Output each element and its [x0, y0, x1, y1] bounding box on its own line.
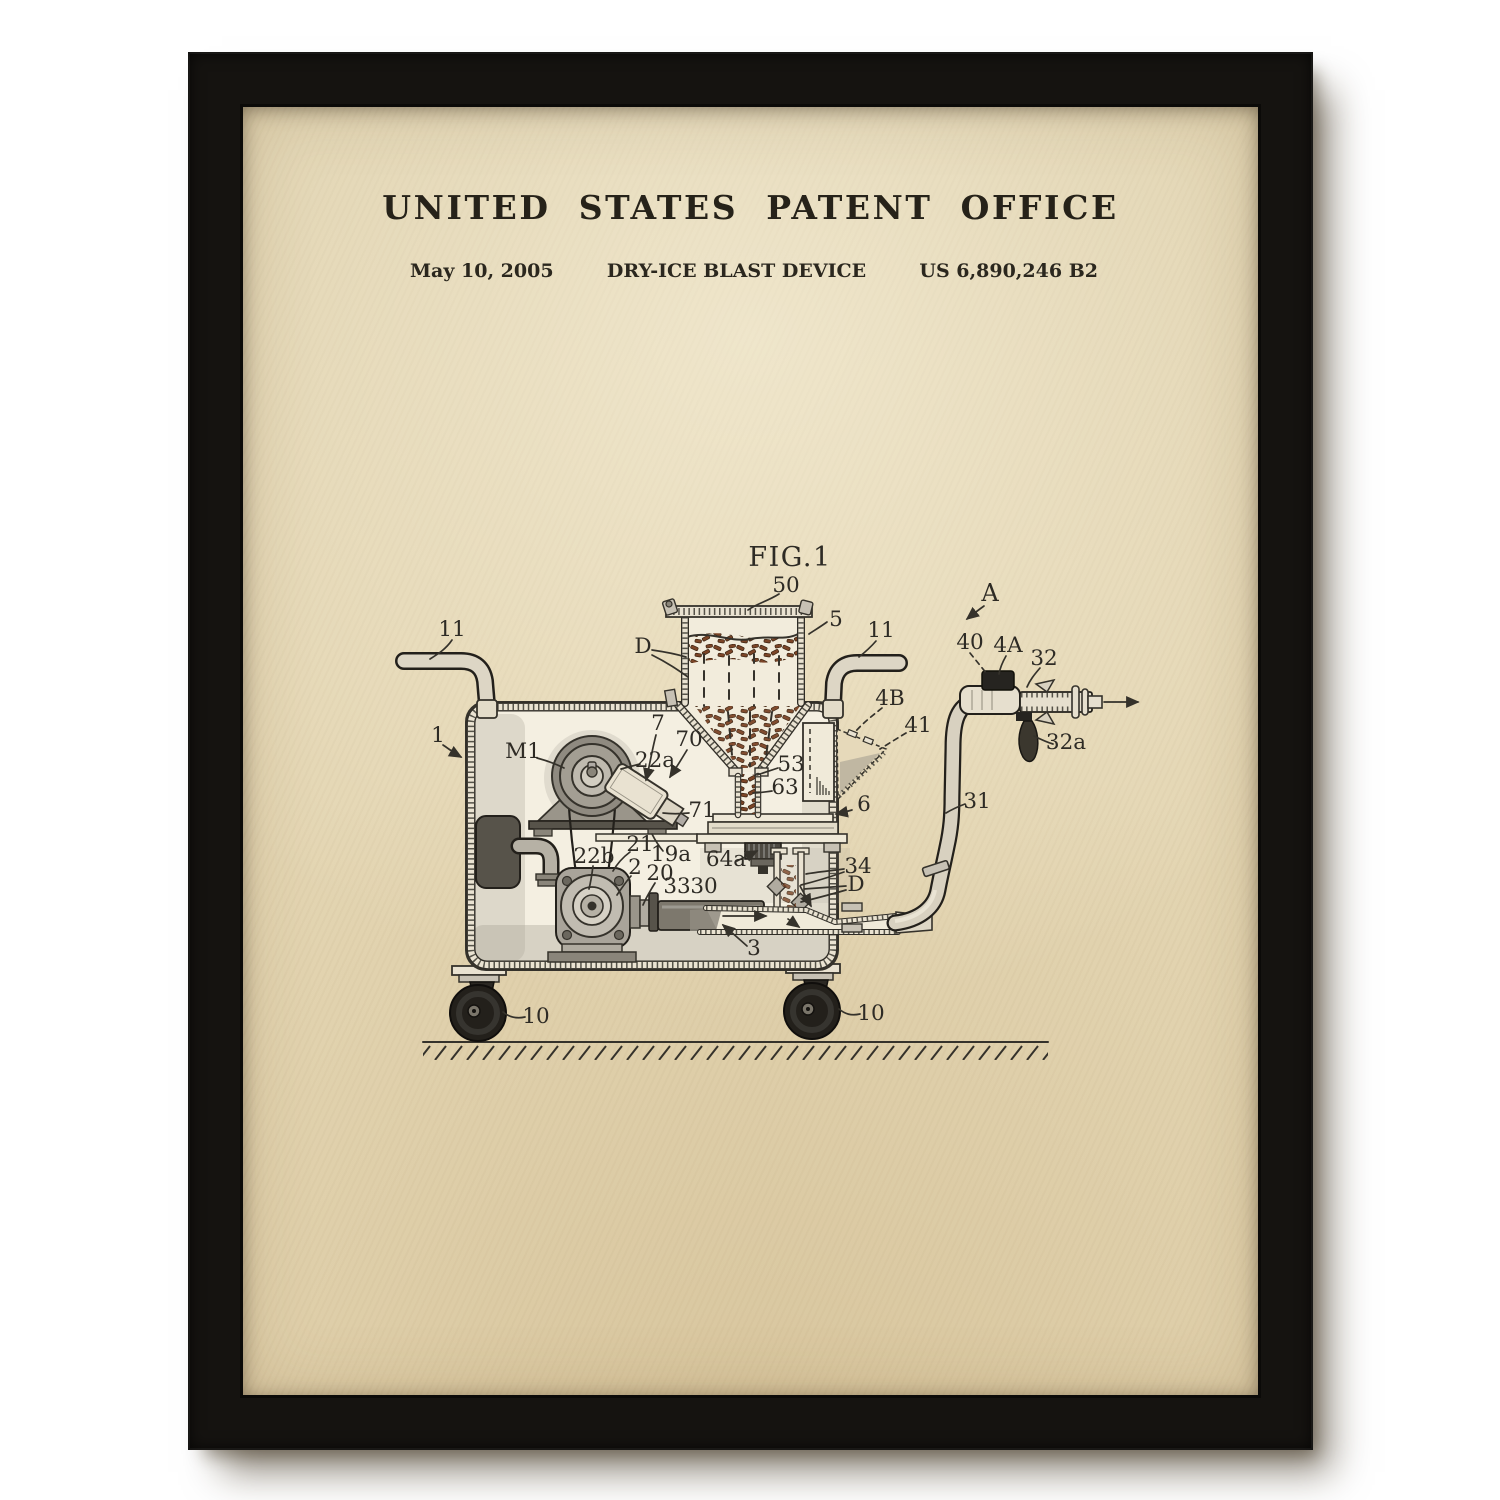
- ref-label-71: 71: [688, 798, 715, 823]
- ref-label-1: 1: [431, 723, 445, 748]
- ref-label-21: 21: [626, 832, 653, 857]
- ref-label-D: D: [847, 872, 864, 897]
- patent-print-paper: UNITED STATES PATENT OFFICE May 10, 2005…: [240, 104, 1261, 1398]
- ref-label-6: 6: [857, 792, 871, 817]
- ref-label-7: 7: [651, 711, 665, 736]
- ref-label-5: 5: [829, 607, 843, 632]
- caster-wheel-left: [450, 966, 506, 1041]
- handle-left: [404, 661, 487, 705]
- ref-label-3: 3: [747, 936, 761, 961]
- ref-label-50: 50: [772, 573, 799, 598]
- gun-valve-block: [982, 671, 1014, 690]
- ref-label-31: 31: [963, 789, 990, 814]
- ref-label-10: 10: [522, 1004, 549, 1029]
- ref-label-10: 10: [857, 1001, 884, 1026]
- ref-label-41: 41: [904, 713, 931, 738]
- ref-label-30: 30: [690, 874, 717, 899]
- patent-figure-svg: FIG.150A11D511404A324B411M177022a32a5363…: [240, 104, 1261, 1398]
- ref-label-63: 63: [771, 775, 798, 800]
- ref-label-64a: 64a: [706, 847, 746, 872]
- ref-label-11: 11: [867, 618, 894, 643]
- ref-label-32a: 32a: [1046, 730, 1086, 755]
- ground-line: [423, 1042, 1048, 1060]
- ref-label-22b: 22b: [573, 844, 614, 869]
- ref-label-2: 2: [628, 855, 642, 880]
- ref-label-M1: M1: [505, 739, 541, 764]
- ref-label-22a: 22a: [635, 748, 675, 773]
- ref-label-33: 33: [663, 874, 690, 899]
- caster-wheel-right: [784, 964, 840, 1039]
- ref-label-32: 32: [1030, 646, 1057, 671]
- picture-frame: UNITED STATES PATENT OFFICE May 10, 2005…: [188, 52, 1313, 1450]
- gun-trigger-32a: [1019, 721, 1038, 762]
- ref-label-11: 11: [438, 617, 465, 642]
- ref-label-4A: 4A: [993, 633, 1023, 658]
- ref-label-A: A: [980, 579, 999, 607]
- ref-label-53: 53: [777, 752, 804, 777]
- ref-label-FIG.1: FIG.1: [748, 542, 831, 573]
- ref-label-D: D: [634, 634, 651, 659]
- ref-label-70: 70: [675, 727, 702, 752]
- ref-label-4B: 4B: [875, 686, 904, 711]
- ref-label-40: 40: [956, 630, 983, 655]
- side-chute: [803, 723, 886, 801]
